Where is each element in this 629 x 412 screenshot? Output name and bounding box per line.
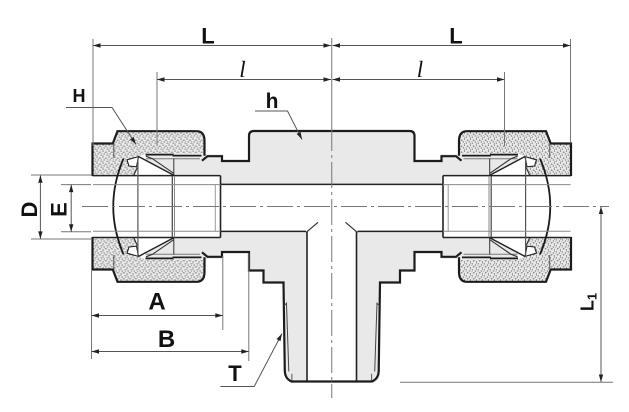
svg-text:L: L <box>449 24 462 49</box>
svg-text:D: D <box>17 202 42 218</box>
svg-text:T: T <box>228 361 242 386</box>
svg-text:h: h <box>266 90 279 113</box>
svg-text:l: l <box>239 57 245 82</box>
svg-text:B: B <box>158 326 175 353</box>
svg-text:L: L <box>201 24 214 49</box>
svg-text:E: E <box>47 202 72 217</box>
svg-text:H: H <box>73 86 86 106</box>
svg-text:A: A <box>148 289 165 316</box>
svg-text:l: l <box>417 57 423 82</box>
